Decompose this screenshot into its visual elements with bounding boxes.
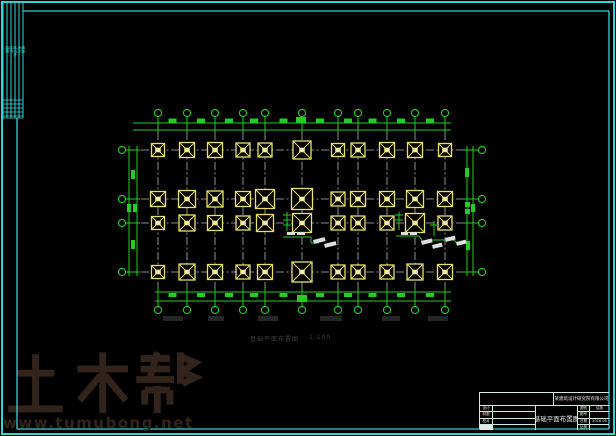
- title-block-info-column: 图别 结施 图号 日期 2016.06 比例: [578, 406, 609, 430]
- column-section: [413, 197, 418, 201]
- axis-bubble-bottom: [354, 306, 361, 313]
- dimension-text-mark: [426, 293, 434, 297]
- column-footing: [408, 143, 423, 158]
- faint-text-mark: [208, 316, 224, 321]
- column-footing: [407, 264, 423, 280]
- column-section: [185, 148, 190, 152]
- dimension-text-mark: [369, 293, 377, 297]
- column-section: [263, 197, 268, 201]
- column-footing: [331, 192, 345, 206]
- dimension-text-mark: [465, 202, 470, 207]
- axis-bubble-top: [298, 109, 305, 116]
- column-footing: [292, 262, 312, 282]
- column-footing: [208, 143, 223, 158]
- info-value: [590, 412, 609, 417]
- dimension-text-mark: [169, 293, 177, 297]
- axis-bubble-top: [183, 109, 190, 116]
- dimension-label-mark: [432, 243, 443, 249]
- info-label: 图号: [578, 412, 590, 417]
- column-section: [443, 197, 448, 201]
- axis-bubble-top: [261, 109, 268, 116]
- signature-value: [493, 419, 535, 424]
- column-section: [213, 270, 218, 274]
- dimension-label-mark: [410, 232, 417, 235]
- signature-value: [493, 406, 535, 411]
- column-footing: [151, 192, 166, 207]
- axis-bubble-bottom: [334, 306, 341, 313]
- column-footing: [407, 191, 424, 208]
- signature-label: 制图: [480, 412, 493, 417]
- title-block-signature-column: 设计 制图 校对 审核: [480, 406, 535, 430]
- column-section: [385, 197, 390, 201]
- column-footing: [351, 216, 365, 230]
- dimension-text-mark: [465, 209, 470, 214]
- column-footing: [152, 144, 165, 157]
- column-section: [385, 270, 390, 274]
- dimension-label-mark: [324, 241, 337, 248]
- watermark-title-glyphs: [8, 352, 195, 413]
- column-section: [443, 221, 448, 225]
- dimension-text-mark: [280, 293, 288, 297]
- column-footing: [293, 141, 311, 159]
- column-section: [336, 197, 341, 201]
- axis-bubble-top: [211, 109, 218, 116]
- column-section: [356, 197, 361, 201]
- column-footing: [152, 217, 165, 230]
- signature-label-stamp: 审核: [480, 425, 493, 430]
- column-section: [213, 197, 218, 201]
- faint-text-mark: [163, 316, 183, 321]
- column-section: [156, 221, 161, 225]
- signature-label: 校对: [480, 419, 493, 424]
- signature-label: 设计: [480, 406, 493, 411]
- dimension-text-mark: [397, 293, 405, 297]
- dimension-text-mark: [426, 119, 434, 123]
- column-footing: [152, 266, 165, 279]
- axis-bubble-bottom: [183, 306, 190, 313]
- axis-bubble-left: [118, 146, 125, 153]
- dimension-label-mark: [313, 237, 326, 244]
- column-footing: [257, 215, 274, 232]
- signature-value: [493, 412, 535, 417]
- column-footing: [293, 214, 312, 233]
- column-footing: [351, 192, 366, 207]
- faint-text-mark: [320, 316, 342, 321]
- dimension-label-mark: [401, 232, 408, 235]
- dimension-text-mark: [131, 170, 135, 179]
- column-footing: [208, 216, 223, 231]
- column-footings: [151, 141, 453, 282]
- axis-bubble-bottom: [211, 306, 218, 313]
- column-footing: [258, 143, 272, 157]
- column-footing: [351, 265, 365, 279]
- column-section: [213, 221, 218, 225]
- axis-bubble-right: [478, 219, 485, 226]
- column-footing: [439, 144, 452, 157]
- dimension-text-mark-large: [296, 117, 306, 123]
- dimension-label-mark: [456, 240, 467, 246]
- cad-drawing-sheet: 建筑结构给排水电气暖通 基础平面布置图 1:100 www.tumubong.n…: [0, 0, 616, 436]
- dimension-text-mark-large: [297, 295, 307, 302]
- column-footing: [208, 265, 223, 280]
- column-section: [185, 270, 190, 274]
- dimension-label-mark: [287, 232, 295, 235]
- column-footing: [438, 192, 453, 207]
- column-section: [241, 221, 246, 225]
- dimension-text-mark: [471, 204, 475, 212]
- info-label: 图别: [578, 406, 590, 411]
- column-footing: [380, 216, 394, 230]
- column-section: [241, 270, 246, 274]
- column-footing: [292, 189, 313, 210]
- dimension-text-mark: [133, 204, 137, 212]
- dimension-text-mark: [344, 293, 352, 297]
- dimension-text-mark: [280, 119, 288, 123]
- column-footing: [380, 143, 395, 158]
- drawing-caption: 基础平面布置图 1:100: [250, 334, 331, 343]
- column-section: [263, 148, 268, 152]
- axis-bubble-top: [441, 109, 448, 116]
- column-footing: [380, 192, 395, 207]
- axis-bubble-bottom: [261, 306, 268, 313]
- column-section: [263, 270, 268, 274]
- column-section: [356, 221, 361, 225]
- faint-text-mark: [382, 316, 400, 321]
- dimension-text-mark: [466, 241, 470, 250]
- column-footing: [331, 216, 345, 230]
- column-section: [185, 221, 190, 225]
- column-section: [263, 221, 268, 225]
- signature-strip: 建筑结构给排水电气暖通: [3, 3, 26, 118]
- column-footing: [258, 265, 273, 280]
- column-section: [300, 148, 305, 152]
- column-section: [156, 270, 161, 274]
- column-footing: [236, 192, 251, 207]
- axis-bubble-left: [118, 219, 125, 226]
- axis-bubble-top: [334, 109, 341, 116]
- column-section: [213, 148, 218, 152]
- column-section: [413, 221, 418, 225]
- column-footing: [179, 191, 196, 208]
- dimension-text-mark: [225, 293, 233, 297]
- axis-bubble-top: [354, 109, 361, 116]
- dimension-text-mark: [127, 204, 131, 212]
- dimension-text-mark: [197, 119, 205, 123]
- column-section: [356, 270, 361, 274]
- column-section: [336, 270, 341, 274]
- axis-bubble-bottom: [154, 306, 161, 313]
- axis-bubble-right: [478, 146, 485, 153]
- column-section: [356, 148, 361, 152]
- dimension-label-mark: [421, 238, 433, 245]
- dimension-text-mark: [225, 119, 233, 123]
- column-section: [241, 148, 246, 152]
- axis-bubble-right: [478, 195, 485, 202]
- caption-scale: 1:100: [309, 334, 331, 343]
- caption-title: 基础平面布置图: [250, 334, 299, 343]
- info-value: 2016.06: [590, 419, 609, 424]
- column-section: [241, 197, 246, 201]
- column-footing: [236, 143, 250, 157]
- axis-bubble-right: [478, 268, 485, 275]
- plan-drawing-canvas: 建筑结构给排水电气暖通: [0, 0, 616, 436]
- dimension-text-mark: [397, 119, 405, 123]
- column-footing: [207, 191, 223, 207]
- column-footing: [179, 215, 195, 231]
- axis-bubble-bottom: [298, 306, 305, 313]
- axis-bubble-top: [411, 109, 418, 116]
- column-footing: [332, 144, 345, 157]
- axis-bubble-bottom: [383, 306, 390, 313]
- faint-text-mark: [428, 316, 448, 321]
- axis-bubble-top: [239, 109, 246, 116]
- column-section: [413, 148, 418, 152]
- column-footing: [256, 190, 275, 209]
- dimension-text-mark: [131, 240, 135, 249]
- column-footing: [236, 216, 250, 230]
- axis-bubble-top: [154, 109, 161, 116]
- info-value: [590, 425, 609, 430]
- column-footing: [438, 265, 453, 280]
- axis-bubble-left: [118, 195, 125, 202]
- column-section: [185, 197, 190, 201]
- dimension-text-mark: [169, 119, 177, 123]
- column-section: [300, 270, 305, 274]
- column-footing: [406, 214, 425, 233]
- axis-bubble-bottom: [411, 306, 418, 313]
- column-section: [385, 148, 390, 152]
- column-section: [300, 221, 305, 225]
- axis-bubble-bottom: [441, 306, 448, 313]
- column-footing: [331, 265, 345, 279]
- dimension-text-mark: [316, 119, 324, 123]
- column-section: [156, 197, 161, 201]
- dimension-text-mark: [344, 119, 352, 123]
- dimension-text-mark: [197, 293, 205, 297]
- watermark-url: www.tumubong.net: [3, 414, 194, 432]
- signature-value: [493, 425, 535, 430]
- dimension-text-mark: [369, 119, 377, 123]
- title-block-drawing-title: 基础平面布置图: [535, 406, 578, 430]
- title-block-company: 某建筑设计研究院有限公司: [554, 393, 609, 405]
- column-section: [413, 270, 418, 274]
- column-section: [443, 148, 448, 152]
- column-footing: [179, 264, 195, 280]
- dimension-label-mark: [297, 232, 305, 235]
- column-section: [156, 148, 161, 152]
- info-label: 日期: [578, 419, 590, 424]
- column-section: [300, 197, 305, 201]
- column-section: [443, 270, 448, 274]
- column-section: [336, 221, 341, 225]
- column-footing: [438, 216, 452, 230]
- dimension-text-mark: [316, 293, 324, 297]
- strip-label: 暖通: [21, 46, 26, 53]
- title-block-logo-cell: [480, 393, 554, 405]
- title-block: 某建筑设计研究院有限公司 设计 制图 校对 审核: [479, 392, 609, 429]
- dimension-text-mark: [250, 119, 258, 123]
- faint-text-mark: [258, 316, 278, 321]
- info-label: 比例: [578, 425, 590, 430]
- column-footing: [380, 265, 394, 279]
- info-value: 结施: [590, 406, 609, 411]
- column-section: [385, 221, 390, 225]
- axis-bubble-top: [383, 109, 390, 116]
- column-footing: [236, 265, 250, 279]
- dimension-label-mark: [445, 236, 456, 242]
- column-footing: [180, 143, 195, 158]
- dimension-text-mark: [250, 293, 258, 297]
- axis-bubble-left: [118, 268, 125, 275]
- column-section: [336, 148, 341, 152]
- dimension-text-mark: [465, 168, 469, 177]
- column-footing: [351, 143, 365, 157]
- axis-bubble-bottom: [239, 306, 246, 313]
